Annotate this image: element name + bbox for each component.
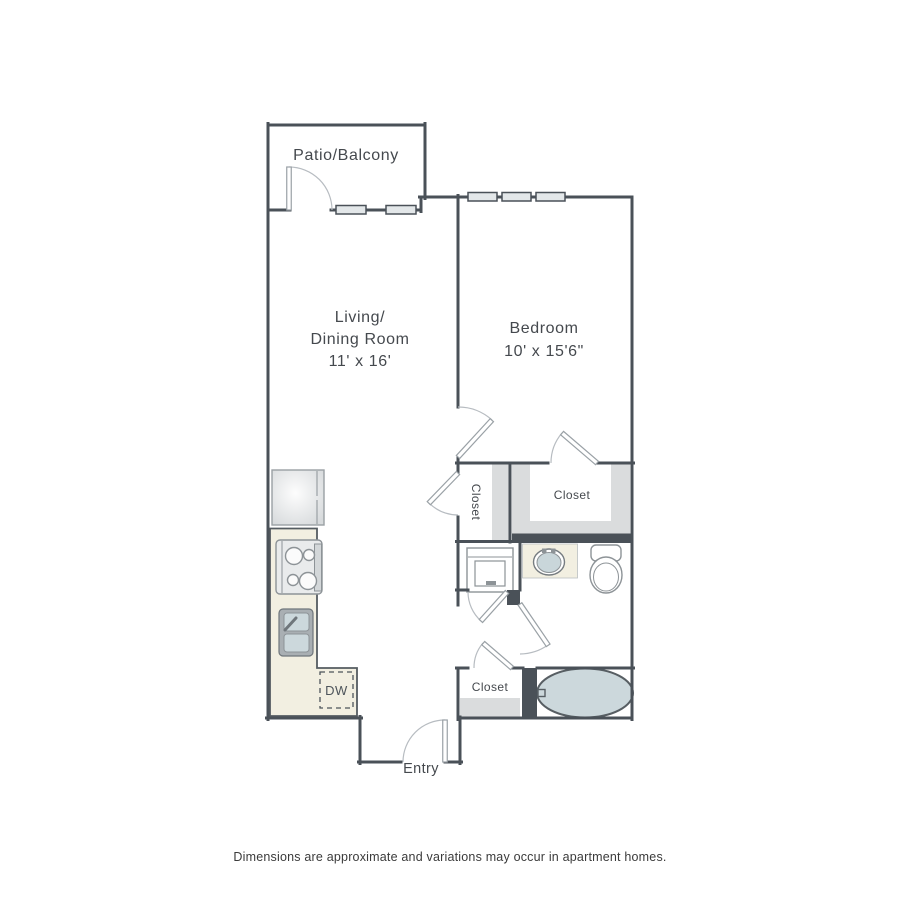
stove-icon <box>276 540 322 594</box>
washer-nook-door-icon <box>468 590 509 622</box>
floor-plan: DW <box>0 0 900 830</box>
bedroom-label: Bedroom <box>509 320 578 337</box>
window-icon <box>468 193 497 202</box>
bedroom-closet-shade-left <box>512 464 530 522</box>
window-icon <box>536 193 565 202</box>
disclaimer-text: Dimensions are approximate and variation… <box>0 850 900 864</box>
entry-closet-door-icon <box>474 641 513 669</box>
bathroom-door-icon <box>518 603 550 654</box>
bedroom-door-icon <box>456 407 493 459</box>
entry-closet-shade <box>460 698 520 717</box>
thick-wall-bath-top <box>512 534 632 544</box>
living-room-dimensions: 11' x 16' <box>329 353 392 370</box>
wall-jamb-nook <box>507 590 520 605</box>
dishwasher-label: DW <box>325 683 348 698</box>
hall-closet-shade <box>492 464 510 541</box>
washer-dryer-icon <box>467 548 513 592</box>
window-icon <box>502 193 531 202</box>
patio-label: Patio/Balcony <box>293 147 399 164</box>
toilet-icon <box>590 545 622 593</box>
patio-door-icon <box>287 167 332 210</box>
bathtub-icon <box>530 669 633 718</box>
bedroom-closet-shade-right <box>611 464 630 522</box>
refrigerator-icon <box>272 470 324 525</box>
thick-wall-closet-tub <box>522 668 537 719</box>
bedroom-closet-shade-bottom <box>512 521 630 534</box>
hall-closet-door-icon <box>427 471 459 515</box>
bedroom-dimensions: 10' x 15'6" <box>504 343 584 360</box>
entry-door-icon <box>403 720 447 762</box>
hall-closet-label: Closet <box>469 484 483 521</box>
bedroom-closet-door-icon <box>551 431 598 464</box>
living-room-label-line2: Dining Room <box>310 331 409 348</box>
window-icon <box>336 206 366 215</box>
entry-label: Entry <box>403 761 439 777</box>
vanity-sink-icon <box>534 549 565 576</box>
bedroom-closet-label: Closet <box>554 488 591 502</box>
kitchen: DW <box>270 470 357 716</box>
kitchen-sink-icon <box>279 609 313 656</box>
living-room-label-line1: Living/ <box>335 309 385 326</box>
entry-closet-label: Closet <box>472 680 509 694</box>
window-icon <box>386 206 416 215</box>
floor-plan-page: DW <box>0 0 900 900</box>
